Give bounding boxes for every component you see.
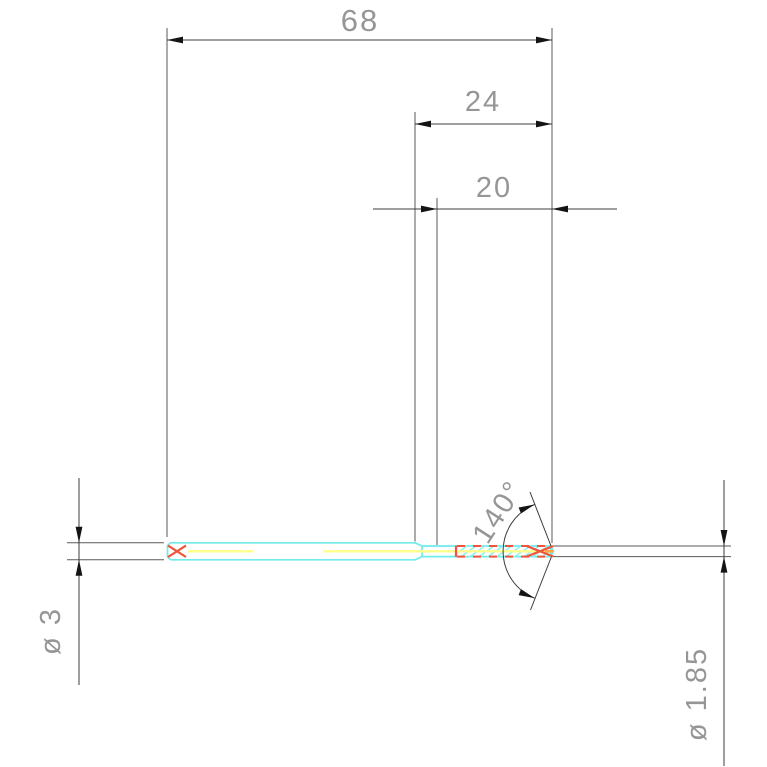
dim-text-24: 24 <box>465 86 501 118</box>
arrowhead-left <box>421 206 437 213</box>
arrowhead-bottom <box>721 557 728 573</box>
technical-drawing-svg: 68 24 20 140° ø 3 <box>0 0 767 767</box>
dimension-step-length: 24 <box>415 86 552 542</box>
arrowhead-lower <box>519 589 535 598</box>
dimension-cutting-diameter: ø 1.85 <box>553 480 731 766</box>
shank-center-mark <box>168 546 186 557</box>
arrowhead-right <box>536 121 552 128</box>
dimension-shank-diameter: ø 3 <box>35 478 164 685</box>
drawing-canvas: 68 24 20 140° ø 3 <box>0 0 767 767</box>
dimension-point-angle: 140° <box>467 475 552 610</box>
arrowhead-bottom <box>76 560 83 576</box>
dim-text-dia3: ø 3 <box>35 607 67 655</box>
arrowhead-left <box>415 121 431 128</box>
dim-text-20: 20 <box>476 172 512 204</box>
arrowhead-top <box>721 530 728 546</box>
arrowhead-left <box>167 37 183 44</box>
arrowhead-top <box>76 527 83 543</box>
dim-text-68: 68 <box>341 3 379 38</box>
angle-flank-upper <box>530 492 551 546</box>
tool-profile <box>168 543 568 560</box>
arrowhead-right <box>536 37 552 44</box>
dimension-overall-length: 68 <box>167 3 552 543</box>
dim-text-dia185: ø 1.85 <box>681 647 713 741</box>
arrowhead-right <box>552 206 568 213</box>
angle-flank-lower <box>531 557 552 611</box>
